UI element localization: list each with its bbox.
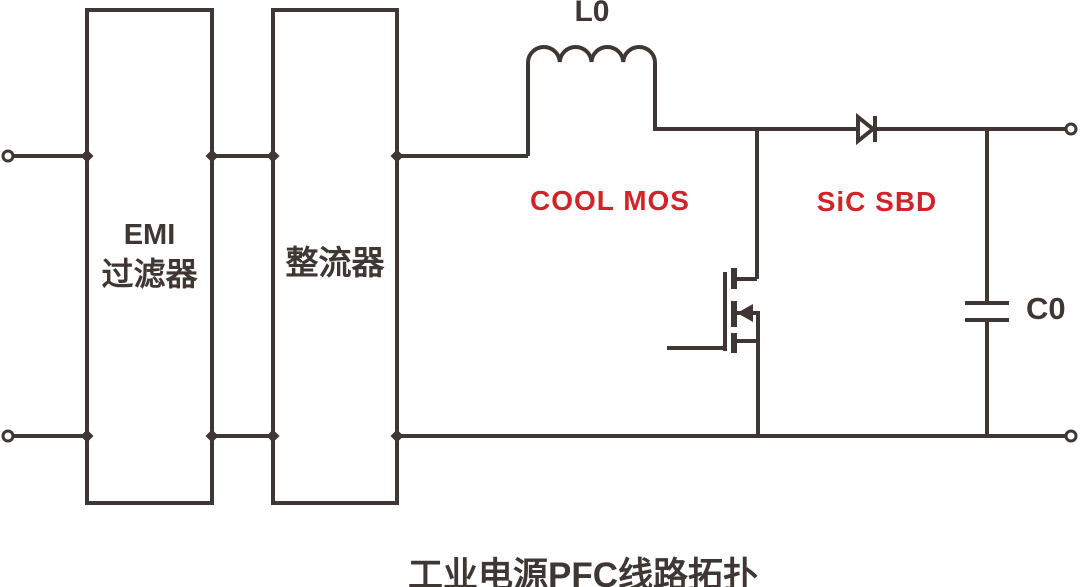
emi-filter-label-line1: EMI bbox=[87, 216, 212, 255]
diode-symbol bbox=[858, 116, 875, 142]
input-terminal-top bbox=[3, 151, 13, 161]
capacitor-symbol bbox=[965, 129, 1009, 436]
mosfet-label: COOL MOS bbox=[528, 185, 692, 217]
diagram-title: 工业电源PFC线路拓扑 bbox=[403, 547, 763, 587]
rectifier-label: 整流器 bbox=[273, 236, 397, 284]
capacitor-label: C0 bbox=[1026, 291, 1066, 327]
output-terminal-top bbox=[1066, 124, 1076, 134]
diode-label: SiC SBD bbox=[815, 186, 939, 218]
inductor-label: L0 bbox=[557, 0, 627, 29]
emi-filter-label-line2: 过滤器 bbox=[87, 255, 212, 294]
emi-filter-label: EMI 过滤器 bbox=[87, 216, 212, 294]
inductor-symbol bbox=[528, 47, 655, 156]
output-terminal-bottom bbox=[1066, 431, 1076, 441]
pfc-topology-diagram: L0 EMI 过滤器 整流器 COOL MOS SiC SBD C0 工业电源P… bbox=[0, 0, 1080, 587]
input-terminal-bottom bbox=[3, 431, 13, 441]
mosfet-symbol bbox=[667, 129, 758, 436]
